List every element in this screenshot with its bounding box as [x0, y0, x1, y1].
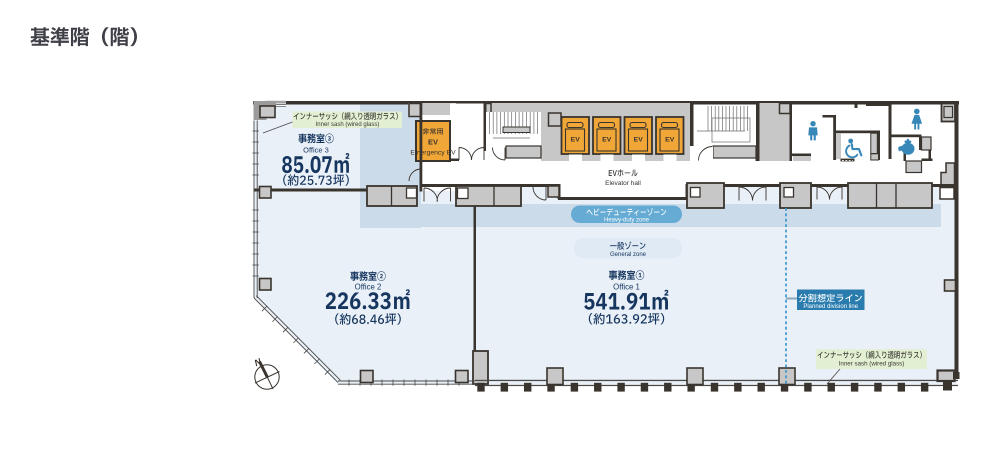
svg-text:EV: EV [634, 137, 644, 144]
svg-text:Office 1: Office 1 [613, 282, 640, 291]
svg-text:General zone: General zone [610, 252, 647, 258]
svg-text:Office 3: Office 3 [303, 145, 329, 154]
svg-text:EV: EV [665, 137, 675, 144]
svg-text:EV: EV [571, 137, 581, 144]
svg-text:Inner sash (wired glass): Inner sash (wired glass) [839, 361, 905, 368]
svg-text:EV: EV [602, 137, 612, 144]
svg-text:Inner sash (wired glass): Inner sash (wired glass) [316, 122, 380, 128]
svg-text:EV: EV [428, 138, 438, 147]
svg-text:Planned division line: Planned division line [803, 304, 858, 310]
svg-text:Office 2: Office 2 [355, 282, 382, 291]
svg-text:Elevator hall: Elevator hall [605, 180, 641, 187]
svg-text:Heavy-duty zone: Heavy-duty zone [604, 218, 650, 224]
svg-text:Emergency EV: Emergency EV [410, 150, 456, 157]
